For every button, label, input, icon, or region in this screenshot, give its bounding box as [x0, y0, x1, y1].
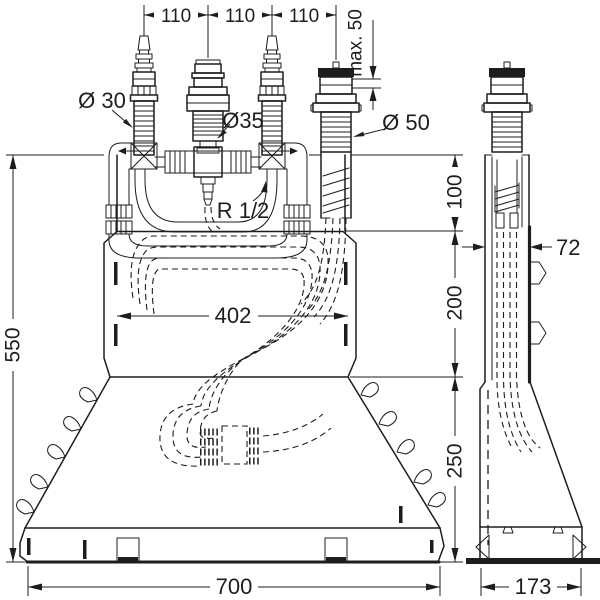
- flow-arrow-left-icon: [118, 148, 134, 155]
- dim-side-depth: 72: [556, 235, 580, 260]
- dim-height-lower: 250: [444, 443, 467, 478]
- dim-height-middle: 200: [444, 285, 467, 320]
- base-feet: [117, 538, 347, 561]
- skirt-right-edge: [348, 377, 440, 528]
- label-diverter-diameter: Ø35: [222, 108, 264, 133]
- retaining-clip: [530, 262, 546, 284]
- retaining-clip: [530, 322, 546, 344]
- dim-height-upper: 100: [444, 174, 467, 209]
- ground-line: [466, 558, 600, 564]
- dim-top-spacing-1: 110: [161, 6, 191, 27]
- flow-arrow-right-icon: [282, 148, 298, 155]
- label-thread-size: R 1/2: [217, 198, 270, 223]
- valve-hot: [131, 36, 158, 155]
- dimension-texts: 110 110 110 max. 50 550 100 200 250 402 …: [2, 6, 581, 599]
- side-view: [466, 62, 600, 564]
- dim-top-spacing-2: 110: [225, 6, 255, 27]
- installation-drawing: 110 110 110 max. 50 550 100 200 250 402 …: [0, 0, 600, 600]
- dim-top-spacing-3: 110: [289, 6, 319, 27]
- dim-total-width: 700: [216, 574, 253, 599]
- manifold: [106, 143, 310, 258]
- valve-cold: [259, 36, 286, 155]
- dim-base-depth: 173: [515, 574, 552, 599]
- dim-total-height: 550: [2, 327, 25, 362]
- mounting-tabs: [17, 383, 446, 514]
- spout-column-side: [482, 62, 532, 152]
- diverter-valve: [187, 60, 229, 153]
- dim-max-height: max. 50: [346, 9, 367, 77]
- technical-drawing-page: 110 110 110 max. 50 550 100 200 250 402 …: [0, 0, 600, 600]
- dim-inner-width: 402: [215, 303, 252, 328]
- base-foot-wedge: [476, 535, 586, 559]
- label-spout-diameter: Ø 50: [382, 110, 430, 135]
- label-handle-diameter: Ø 30: [78, 88, 126, 113]
